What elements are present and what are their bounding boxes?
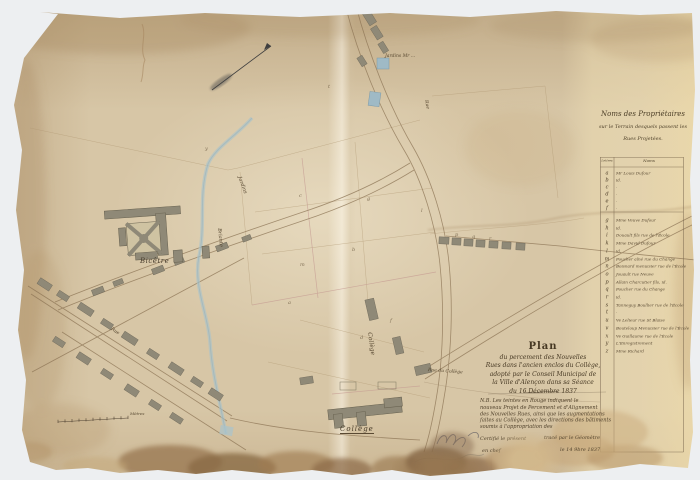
row-name: Mme David Dufour: [616, 241, 655, 246]
row-letter: b: [601, 177, 613, 183]
row-letter: l: [601, 248, 613, 254]
title-line-4: adopté par le Conseil Municipal de: [470, 371, 616, 378]
briante-stream-label: Briante: [216, 228, 223, 247]
row-letter: r: [601, 294, 613, 300]
row-name: id.: [616, 295, 621, 300]
row-name: Jouault rue Neuve: [616, 272, 654, 277]
certification-date: le 14 9bre 1837: [560, 447, 600, 453]
row-name: ·: [616, 206, 617, 211]
row-letter: v: [601, 325, 613, 331]
row-letter: e: [601, 198, 613, 204]
title-line-3: Rues dans l'ancien enclos du Collège,: [470, 362, 616, 369]
row-letter: f: [601, 205, 613, 211]
row-letter: y: [601, 340, 613, 346]
row-name: Allain Charcutier fils, id.: [616, 280, 667, 285]
note-line: soumis à l'appropriation des: [480, 424, 619, 431]
college-bottom-label: Collège: [340, 426, 374, 434]
parcel-letter: r: [489, 236, 491, 242]
row-letter: o: [601, 271, 613, 277]
title-line-5: la Ville d'Alençon dans sa Séance: [470, 379, 616, 386]
rue-right-label: Rue: [423, 100, 429, 110]
row-letter: d: [601, 191, 613, 197]
parcel-letter: g: [367, 196, 370, 202]
row-name: Bouteloup Menuisier rue de l'École: [616, 326, 689, 331]
row-letter: g: [601, 217, 613, 223]
jardin-top-label: Jardins Mr ...: [385, 55, 415, 60]
scanned-map-page: Bicêtre Collège Collège Briante Jardins …: [0, 0, 700, 480]
stain-bottom-center: [392, 448, 488, 480]
proprietors-rows: aMr Louis Dufourbid.c·d·e·f·gMme Veuve D…: [600, 0, 684, 480]
parcel-letter: l: [421, 208, 423, 214]
parcel-letter: t: [328, 84, 330, 90]
row-letter: a: [601, 170, 613, 176]
parcel-letter: y: [205, 146, 208, 152]
row-name: Foucher rue du Change: [616, 287, 665, 292]
college-complex: [328, 382, 403, 428]
row-letter: p: [601, 279, 613, 285]
row-letter: n: [601, 263, 613, 269]
note-block: N.B. Les teintes en Rouge indiquent le n…: [480, 398, 619, 431]
row-letter: u: [601, 317, 613, 323]
row-letter: q: [601, 286, 613, 292]
map-paper-sheet: Bicêtre Collège Collège Briante Jardins …: [0, 0, 700, 480]
row-name: Ve Lelieur rue St Blaise: [616, 318, 665, 323]
row-letter: k: [601, 240, 613, 246]
projected-street-red-lines: [252, 158, 436, 394]
row-name: ·: [616, 185, 617, 190]
table-row: f·: [600, 205, 684, 213]
row-letter: t: [601, 309, 613, 315]
parcel-letter: c: [299, 193, 302, 199]
parcel-letter: m: [300, 262, 305, 268]
title-date-line: du 16 Décembre 1837: [470, 388, 616, 395]
row-name: Tanneguy Boullier rue de l'École: [616, 303, 683, 308]
row-name: Boisnard menuisier rue de l'École: [616, 264, 686, 269]
row-name: Ve Guillaume rue de l'École: [616, 334, 673, 339]
stain-over-certification: [492, 432, 562, 480]
title-block: Plan du percement des Nouvelles Rues dan…: [470, 341, 616, 395]
row-name: id.: [616, 249, 621, 254]
table-row: zMme Richard: [600, 348, 684, 356]
row-name: Foucher aîné rue du Change: [616, 257, 675, 262]
row-letter: c: [601, 184, 613, 190]
north-arrow: [208, 43, 271, 92]
row-name: Mme Richard: [616, 349, 644, 354]
parcel-letter: a: [288, 300, 291, 306]
row-letter: h: [601, 225, 613, 231]
parcel-letter: b: [352, 247, 355, 253]
row-name: ·: [616, 310, 617, 315]
row-name: Mr Louis Dufour: [616, 171, 650, 176]
row-name: ·: [616, 199, 617, 204]
row-letter: x: [601, 333, 613, 339]
bicetre-label: Bicêtre: [140, 258, 169, 265]
row-name: Douault fils rue de l'École: [616, 233, 670, 238]
row-name: id.: [616, 226, 621, 231]
row-name: L'Enregistrement: [616, 341, 652, 346]
scale-bar-label: Mètres: [130, 412, 144, 416]
row-letter: z: [601, 348, 613, 354]
row-letter: m: [601, 256, 613, 262]
title-line-2: du percement des Nouvelles: [470, 354, 616, 361]
row-name: ·: [616, 192, 617, 197]
parcel-letter: p: [455, 232, 458, 238]
parcel-letter: q: [472, 234, 475, 240]
row-letter: s: [601, 302, 613, 308]
plan-title: Plan: [470, 341, 616, 352]
row-name: Mme Veuve Dufour: [616, 218, 656, 223]
parcel-letter: f: [390, 318, 392, 324]
parcel-letter: d: [360, 335, 363, 341]
row-letter: i: [601, 232, 613, 238]
row-name: id.: [616, 178, 621, 183]
